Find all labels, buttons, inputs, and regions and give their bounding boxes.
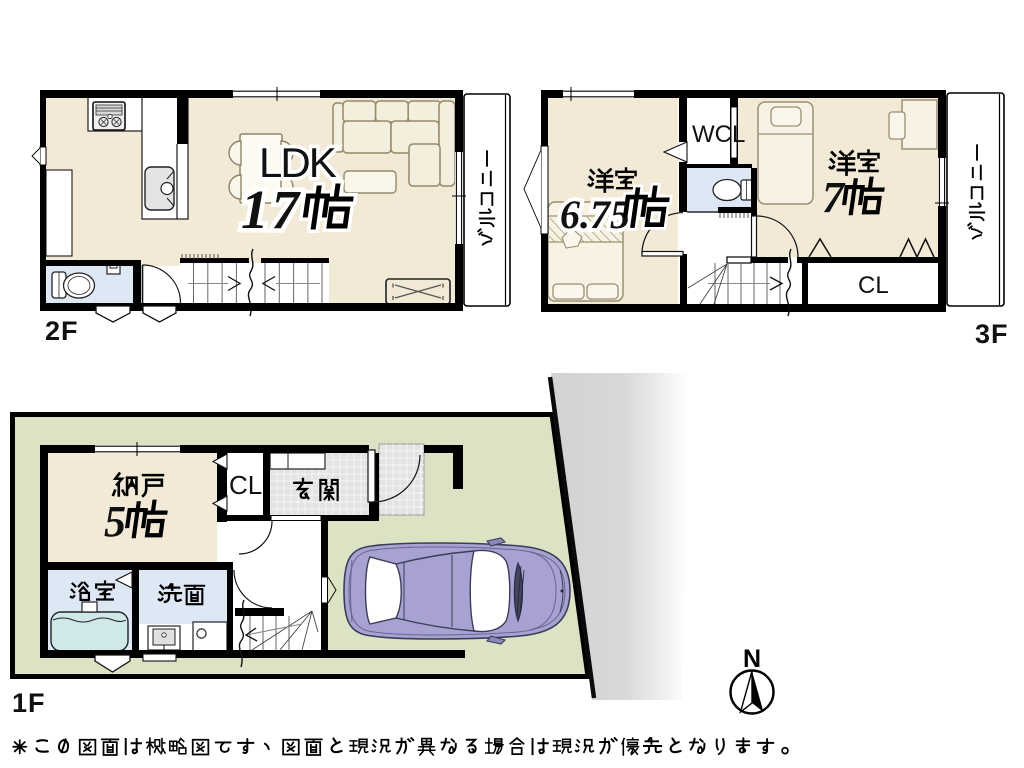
svg-text:2F: 2F xyxy=(45,316,79,346)
svg-text:1F: 1F xyxy=(12,688,46,718)
svg-text:7: 7 xyxy=(822,173,846,222)
svg-text:3F: 3F xyxy=(975,319,1009,349)
svg-text:CL: CL xyxy=(229,470,262,500)
svg-text:17: 17 xyxy=(241,179,302,240)
svg-text:6.75: 6.75 xyxy=(560,192,630,237)
svg-text:WCL: WCL xyxy=(692,121,745,148)
svg-text:CL: CL xyxy=(858,272,889,299)
svg-text:N: N xyxy=(743,645,761,673)
svg-text:5: 5 xyxy=(104,497,126,546)
